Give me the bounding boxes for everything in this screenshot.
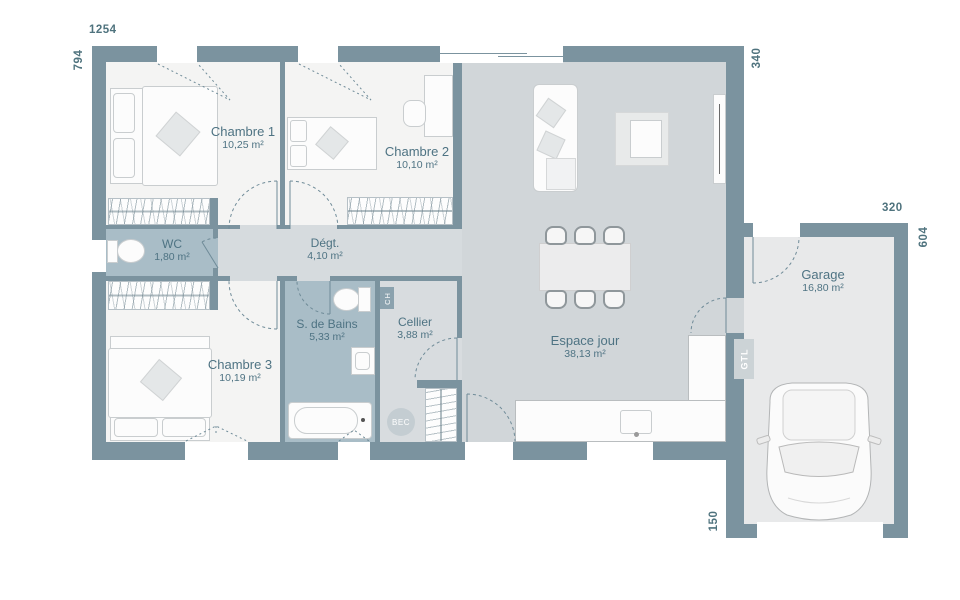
gtl-label: GTL xyxy=(739,349,749,370)
door-opening-sdb xyxy=(297,276,330,281)
room-name-chambre3: Chambre 3 xyxy=(208,357,272,372)
door-opening-wc xyxy=(213,238,218,268)
sofa-chaise xyxy=(546,158,576,190)
room-name-wc: WC xyxy=(154,238,190,251)
door-opening-chambre1 xyxy=(240,225,277,229)
kitchen-counter-vertical xyxy=(688,335,726,402)
toilet-sdb-tank xyxy=(358,287,371,312)
bed-chambre2-pillow2 xyxy=(290,145,307,167)
dim-house-height: 794 xyxy=(73,50,85,71)
bed-chambre3-pillow-left xyxy=(114,418,158,437)
room-label-sdb: S. de Bains 5,33 m² xyxy=(296,317,357,344)
dining-chair-4 xyxy=(545,290,567,309)
dining-chair-6 xyxy=(603,290,625,309)
wall-stub-closet3 xyxy=(210,281,218,310)
bed-chambre1-pillow-bottom xyxy=(113,138,135,178)
kitchen-sink xyxy=(620,410,652,434)
dim-garage-offset: 150 xyxy=(708,511,720,532)
room-name-chambre1: Chambre 1 xyxy=(211,124,275,139)
door-opening-cellier xyxy=(457,338,462,380)
dim-garage-width: 320 xyxy=(882,202,903,214)
room-area-chambre3: 10,19 m² xyxy=(208,372,272,385)
wall-garage-left-strip xyxy=(726,440,744,538)
garage-door xyxy=(757,522,883,538)
chair-desk-chambre2 xyxy=(403,100,426,127)
dining-chair-5 xyxy=(574,290,596,309)
room-label-cellier: Cellier 3,88 m² xyxy=(397,315,433,342)
bathtub-inner xyxy=(294,407,358,434)
window-chambre1 xyxy=(157,44,197,63)
wall-stub-closet1 xyxy=(210,198,218,229)
room-name-degagement: Dégt. xyxy=(307,237,343,250)
room-name-chambre2: Chambre 2 xyxy=(385,144,449,159)
door-opening-garage xyxy=(726,298,744,333)
entry-door xyxy=(465,442,513,461)
room-area-garage: 16,80 m² xyxy=(801,282,844,295)
room-label-chambre1: Chambre 1 10,25 m² xyxy=(211,124,275,152)
room-label-chambre2: Chambre 2 10,10 m² xyxy=(385,144,449,172)
room-name-espace-jour: Espace jour xyxy=(551,333,620,348)
dim-right-top: 340 xyxy=(751,48,763,69)
dining-chair-3 xyxy=(603,226,625,245)
room-area-espace-jour: 38,13 m² xyxy=(551,348,620,361)
room-area-chambre2: 10,10 m² xyxy=(385,159,449,172)
window-chambre2 xyxy=(298,44,338,63)
bed-chambre1-pillow-top xyxy=(113,93,135,133)
door-opening-chambre2 xyxy=(290,225,337,229)
room-area-sdb: 5,33 m² xyxy=(296,331,357,344)
wall-stub-cellier xyxy=(417,380,457,388)
room-label-chambre3: Chambre 3 10,19 m² xyxy=(208,357,272,385)
room-area-degagement: 4,10 m² xyxy=(307,250,343,263)
gtl-badge: GTL xyxy=(734,339,754,379)
chaudiere-badge: CH xyxy=(380,287,394,309)
room-area-chambre1: 10,25 m² xyxy=(211,139,275,152)
bec-label: BEC xyxy=(392,418,410,427)
bed-chambre2-pillow1 xyxy=(290,120,307,142)
room-label-garage: Garage 16,80 m² xyxy=(801,267,844,295)
room-label-wc: WC 1,80 m² xyxy=(154,238,190,264)
desk-chambre2 xyxy=(424,75,453,137)
room-name-sdb: S. de Bains xyxy=(296,317,357,331)
toilet-sdb-bowl xyxy=(333,288,360,311)
kitchen-faucet xyxy=(634,432,639,437)
room-name-cellier: Cellier xyxy=(397,315,433,329)
tv-screen xyxy=(719,104,720,174)
closet-chambre3 xyxy=(108,281,210,310)
garage-service-door xyxy=(753,221,800,237)
chaudiere-label: CH xyxy=(383,292,392,305)
toilet-wc-bowl xyxy=(117,239,145,263)
dim-house-width: 1254 xyxy=(89,24,117,36)
dim-garage-height: 604 xyxy=(918,227,930,248)
door-opening-chambre3 xyxy=(230,276,277,281)
window-chambre3 xyxy=(185,442,248,461)
dining-table xyxy=(539,243,631,291)
window-wc xyxy=(90,240,106,272)
window-sdb xyxy=(338,442,370,461)
closet-chambre1 xyxy=(108,198,210,225)
lounge-table-top xyxy=(630,120,662,158)
sink-sdb-basin xyxy=(355,352,370,370)
floor-plan: Chambre 1 10,25 m² Chambre 2 10,10 m² WC… xyxy=(0,0,960,600)
closet-chambre2 xyxy=(347,197,453,225)
dining-chair-2 xyxy=(574,226,596,245)
bathtub-faucet xyxy=(361,418,365,422)
bay-window-rail-left xyxy=(440,53,527,54)
dining-chair-1 xyxy=(545,226,567,245)
room-area-cellier: 3,88 m² xyxy=(397,329,433,342)
room-name-garage: Garage xyxy=(801,267,844,282)
storage-cellier xyxy=(425,388,457,442)
room-label-espace-jour: Espace jour 38,13 m² xyxy=(551,333,620,361)
room-label-degagement: Dégt. 4,10 m² xyxy=(307,237,343,263)
room-area-wc: 1,80 m² xyxy=(154,251,190,264)
bec-badge: BEC xyxy=(387,408,415,436)
window-kitchen xyxy=(587,442,653,461)
bay-window-rail-right xyxy=(498,56,563,57)
bed-chambre3-pillow-right xyxy=(162,418,206,437)
